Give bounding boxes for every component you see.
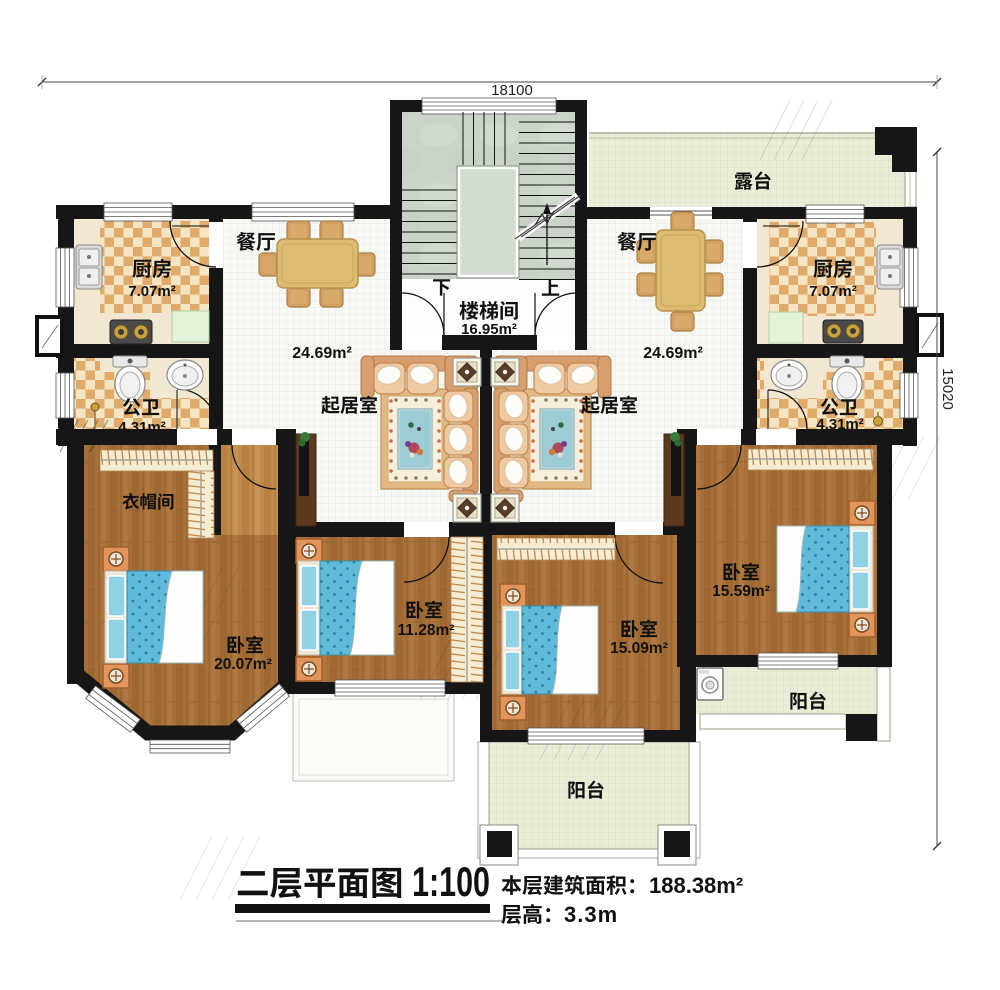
svg-text:16.95m²: 16.95m² [461,321,517,338]
svg-text:4.31m²: 4.31m² [816,416,864,433]
svg-text:7.07m²: 7.07m² [128,283,176,300]
svg-text:188.38m²: 188.38m² [649,873,743,898]
svg-text:20.07m²: 20.07m² [214,656,272,673]
svg-text:3.3m: 3.3m [564,902,618,927]
svg-text:1:100: 1:100 [412,858,490,905]
svg-text:24.69m²: 24.69m² [292,345,352,362]
svg-text:24.69m²: 24.69m² [643,345,703,362]
svg-text:4.31m²: 4.31m² [118,419,166,436]
svg-text:15.59m²: 15.59m² [712,583,770,600]
svg-text:15020: 15020 [939,368,956,410]
svg-text:15.09m²: 15.09m² [610,640,668,657]
svg-text:7.07m²: 7.07m² [809,283,857,300]
svg-text:18100: 18100 [491,82,533,99]
svg-text:11.28m²: 11.28m² [398,622,455,639]
